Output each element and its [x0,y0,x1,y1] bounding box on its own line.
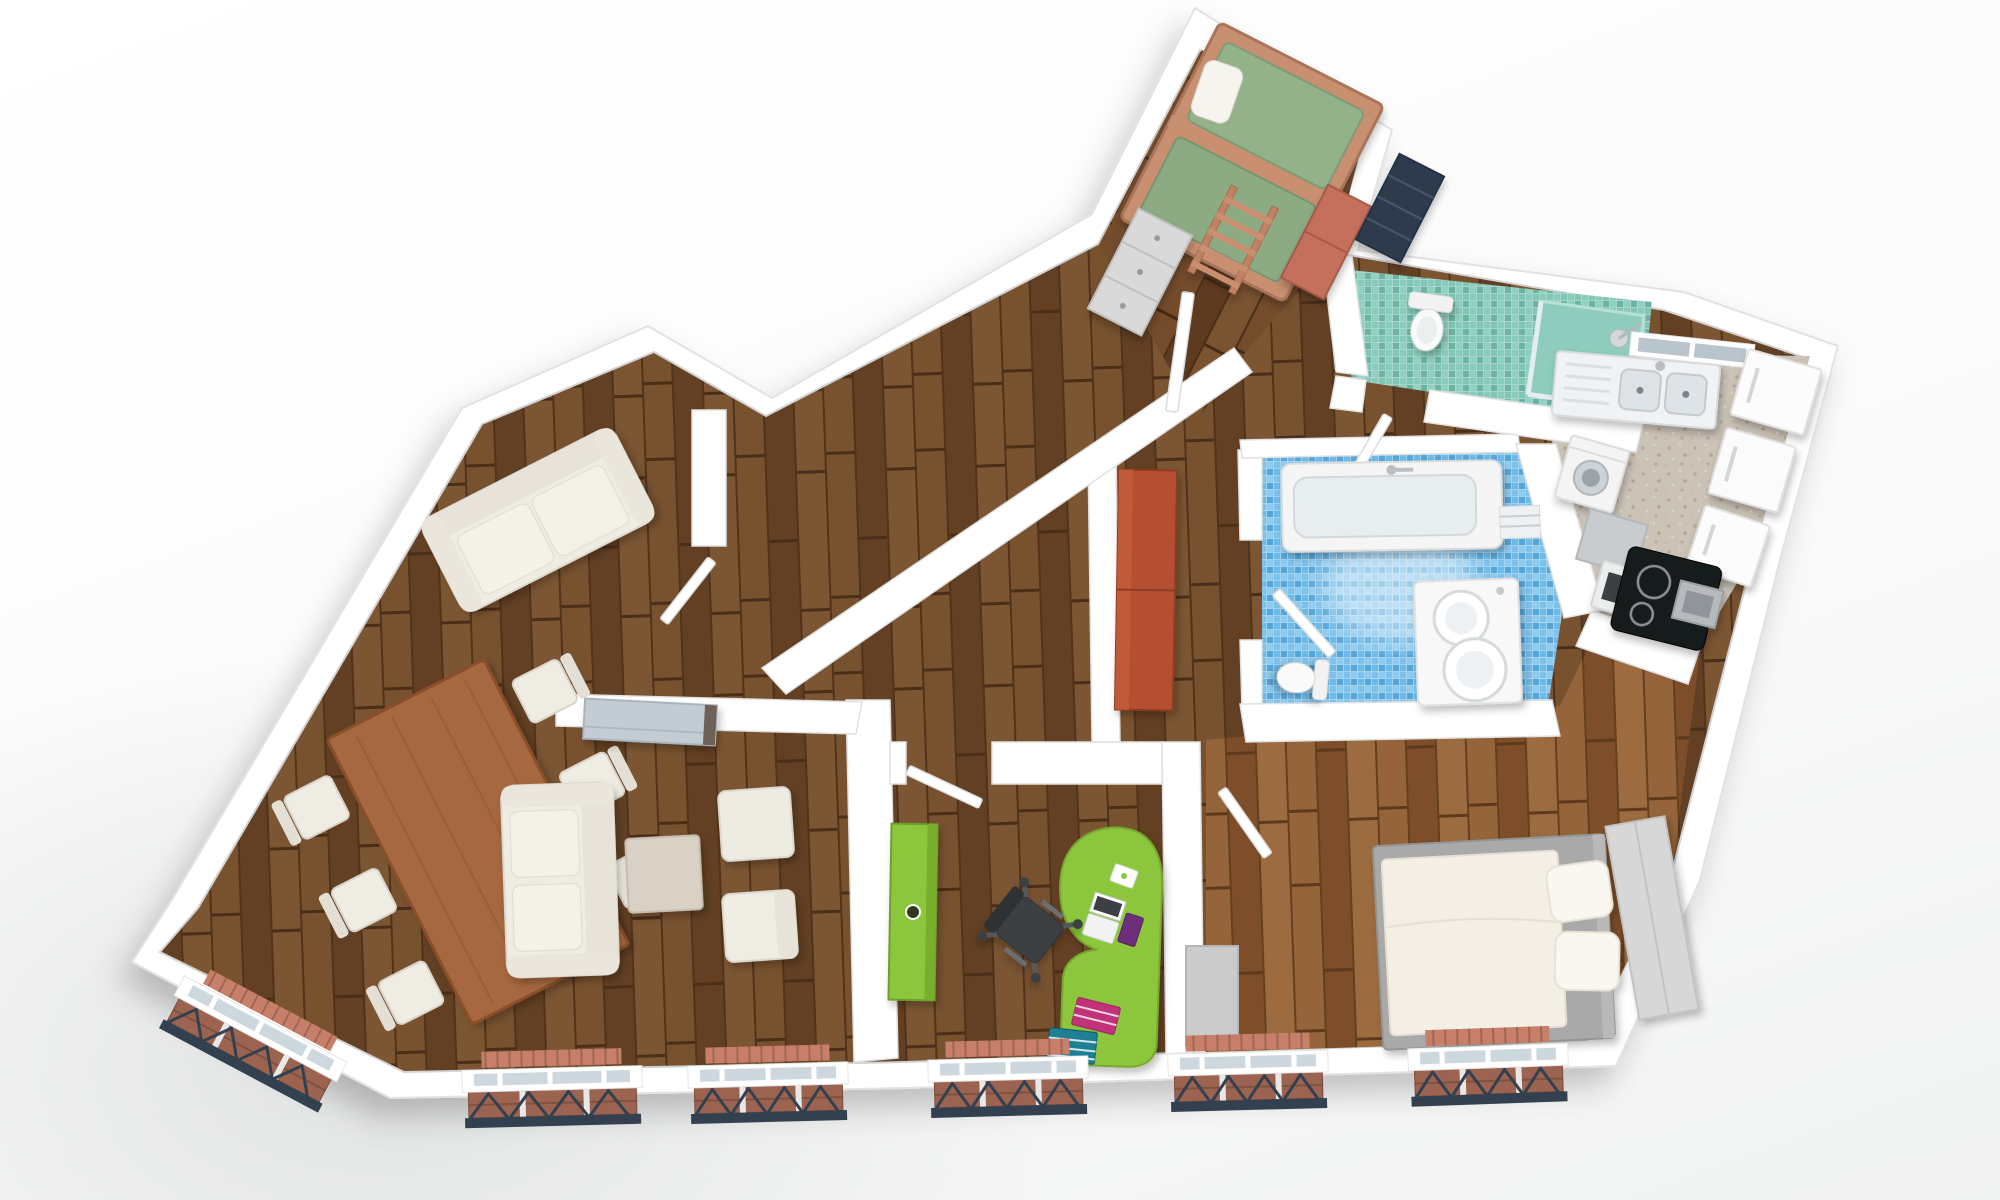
floorplan-stage: 3D rendered top-down floor plan of an ap… [0,0,2000,1200]
pillow [1545,859,1614,923]
kitchen-sink-counter [1552,351,1721,429]
bathtub [1281,460,1503,552]
wall-wc-bottom-left [1330,376,1366,412]
red-wardrobe [1115,470,1177,711]
pillow [1555,932,1620,991]
window-living-1 [461,1048,643,1129]
window-bedroom-1 [1167,1032,1329,1112]
mattress-duvet [1382,851,1567,1036]
window-office [927,1038,1089,1118]
wardrobe-knob [906,905,920,919]
armchair [722,890,799,963]
large-sofa [501,782,620,978]
sideboard [583,699,717,746]
green-wardrobe [888,824,937,1001]
wall-office-top-left [890,742,906,784]
coffee-table [625,835,703,913]
window-living-2 [687,1044,849,1124]
wall-nook-stub [692,410,726,546]
wall-bathroom-bottom [1240,700,1560,742]
wall-bathroom-left-upper [1238,450,1262,540]
vanity-double-sink [1414,578,1522,706]
bedroom-closet [1186,946,1238,1046]
hallway [1115,470,1177,711]
window-bedroom-2 [1407,1025,1570,1107]
wall-bathroom-left-lower [1240,640,1262,710]
wall-office-top [992,742,1162,784]
towel-rack [1499,505,1540,538]
ottoman [718,787,795,862]
floorplan-render [0,0,2000,1200]
double-bed [1373,834,1625,1050]
